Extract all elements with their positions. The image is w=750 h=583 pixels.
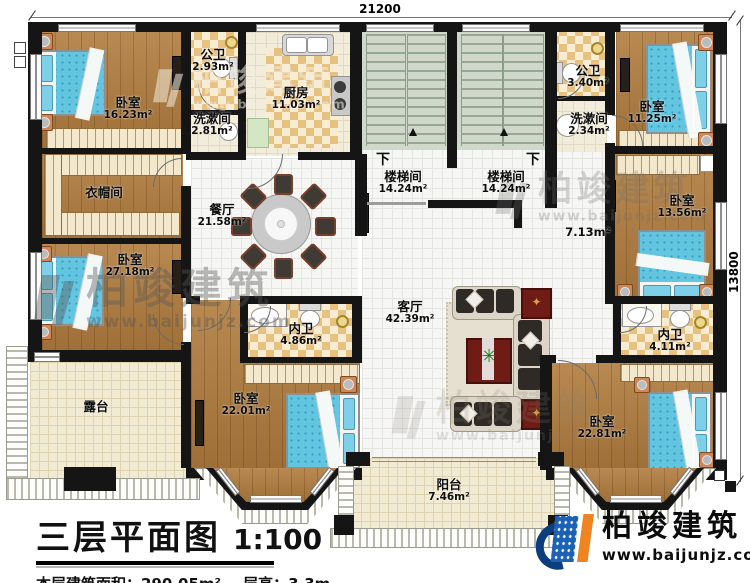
nightstand-icon xyxy=(340,376,357,393)
wall xyxy=(608,296,715,304)
stair-direction-arrow-icon xyxy=(409,128,417,136)
pillar-icon xyxy=(64,467,116,491)
bed-icon xyxy=(36,50,106,116)
room-label-bath-c: 内卫4.86m² xyxy=(280,322,321,348)
wardrobe-icon xyxy=(44,154,62,236)
room-label-terrace: 露台 xyxy=(83,400,108,414)
window-icon xyxy=(715,54,727,124)
wall xyxy=(181,186,191,298)
corner-marker-icon xyxy=(14,56,26,68)
wall xyxy=(238,32,246,154)
room-label-bedroom-bl: 卧室22.01m² xyxy=(222,392,271,418)
wall xyxy=(545,150,557,208)
side-table-icon: ✦ xyxy=(521,288,552,319)
toilet-icon xyxy=(670,310,690,328)
burner-icon xyxy=(334,98,346,110)
dimension-tick xyxy=(728,10,736,20)
wall xyxy=(514,200,522,228)
burner-icon xyxy=(334,81,346,93)
terrace-floor xyxy=(30,362,188,478)
room-label-hall: 7.13m² xyxy=(565,226,610,239)
kitchen-mat-icon xyxy=(247,118,269,148)
sink-bowl-icon xyxy=(286,37,307,53)
brand-block: 柏竣建筑 www.baijunjz.com xyxy=(536,512,746,564)
title-block: 三层平面图 1:100 本层建筑面积：290.05m² 层高：3.3m xyxy=(36,510,376,583)
room-label-bath-br: 内卫4.11m² xyxy=(649,328,690,354)
brand-url: www.baijunjz.com xyxy=(602,546,746,564)
window-icon xyxy=(715,392,727,460)
window-icon xyxy=(250,495,302,503)
window-icon xyxy=(34,352,60,362)
window-icon xyxy=(30,252,42,320)
wall xyxy=(540,355,552,470)
window-icon xyxy=(462,24,530,32)
room-label-living: 客厅42.39m² xyxy=(386,300,435,326)
wall xyxy=(186,152,246,160)
window-icon xyxy=(366,24,434,32)
wardrobe-icon xyxy=(616,155,700,175)
dimension-tick xyxy=(28,10,36,20)
room-label-stair-r: 楼梯间14.24m² xyxy=(482,170,531,196)
wall xyxy=(181,32,191,154)
corner-marker-icon xyxy=(714,470,725,481)
window-icon xyxy=(256,24,340,32)
drawing-scale: 1:100 xyxy=(233,523,322,556)
label-down-left: 下 xyxy=(376,150,390,169)
corner-marker-icon xyxy=(14,42,26,54)
chair-icon xyxy=(274,174,293,195)
window-icon xyxy=(30,54,42,120)
dimension-line-top xyxy=(30,17,732,18)
brand-name: 柏竣建筑 xyxy=(602,512,746,542)
floor-height-text: 层高：3.3m xyxy=(243,573,330,583)
room-label-bath-r: 公卫3.40m² xyxy=(567,64,608,90)
sliding-door-icon xyxy=(372,461,536,462)
plant-icon: ✳ xyxy=(473,346,505,370)
bed-icon xyxy=(36,256,104,326)
room-label-bedroom-tr: 卧室11.25m² xyxy=(628,100,677,126)
terrace-rail xyxy=(6,346,28,500)
dresser-icon xyxy=(620,58,630,92)
tv-cabinet-icon xyxy=(195,400,204,446)
shower-head-icon xyxy=(694,316,707,329)
room-label-kitchen: 厨房11.03m² xyxy=(272,86,321,112)
stair-flight-icon xyxy=(461,34,503,146)
wall xyxy=(447,32,457,168)
room-label-dining: 餐厅21.58m² xyxy=(198,203,247,229)
room-label-stair-l: 楼梯间14.24m² xyxy=(379,170,428,196)
shower-head-icon xyxy=(336,315,349,328)
room-label-bedroom-tl: 卧室16.23m² xyxy=(104,96,153,122)
room-label-balcony: 阳台7.46m² xyxy=(428,478,469,504)
wardrobe-icon xyxy=(46,128,182,150)
nightstand-icon xyxy=(634,377,650,393)
wall xyxy=(352,296,362,359)
wall xyxy=(545,22,557,152)
chair-icon xyxy=(315,217,336,236)
room-label-bedroom-mr: 卧室13.56m² xyxy=(658,194,707,220)
window-icon xyxy=(715,202,727,270)
dimension-top-value: 21200 xyxy=(340,2,420,16)
wall xyxy=(240,296,362,304)
floor-plan-sheet: ✳ ✦ ✦ xyxy=(0,0,750,583)
wall xyxy=(30,238,186,244)
wall xyxy=(428,200,522,208)
window-icon xyxy=(620,24,704,32)
stair-flight-icon xyxy=(503,34,544,146)
brand-logo-icon xyxy=(536,514,596,578)
wall xyxy=(181,342,191,468)
floor-area-text: 本层建筑面积：290.05m² xyxy=(36,573,221,583)
page-title: 三层平面图 xyxy=(36,510,221,559)
wardrobe-icon xyxy=(58,212,180,236)
chair-icon xyxy=(274,258,293,279)
wall xyxy=(242,357,362,363)
window-icon xyxy=(58,24,136,32)
title-underline-shadow xyxy=(36,566,274,568)
bed-icon xyxy=(638,230,706,302)
wall xyxy=(350,22,362,158)
title-underline xyxy=(36,561,274,565)
shower-head-icon xyxy=(591,42,604,55)
half-wall xyxy=(366,202,426,205)
stair-direction-arrow-icon xyxy=(500,128,508,136)
wall xyxy=(608,146,715,154)
room-label-bath-l: 公卫2.93m² xyxy=(192,48,233,74)
window-icon xyxy=(610,495,662,503)
corner-marker-icon xyxy=(725,481,736,492)
room-label-cloakroom: 衣帽间 xyxy=(85,186,123,200)
dimension-right-value: 13800 xyxy=(727,236,743,308)
room-label-bedroom-ml: 卧室27.18m² xyxy=(106,253,155,279)
wall xyxy=(355,154,367,236)
label-down-right: 下 xyxy=(526,150,540,169)
room-label-wash-l: 洗漱间2.81m² xyxy=(191,112,232,138)
wall xyxy=(30,148,186,154)
sink-bowl-icon xyxy=(307,37,328,53)
wall xyxy=(346,452,370,466)
sliding-door-icon xyxy=(372,457,536,458)
dining-table-center-icon xyxy=(277,220,285,228)
room-label-wash-r: 洗漱间2.34m² xyxy=(568,112,609,138)
stair-flight-icon xyxy=(366,34,406,146)
room-label-bedroom-br: 卧室22.81m² xyxy=(578,415,627,441)
